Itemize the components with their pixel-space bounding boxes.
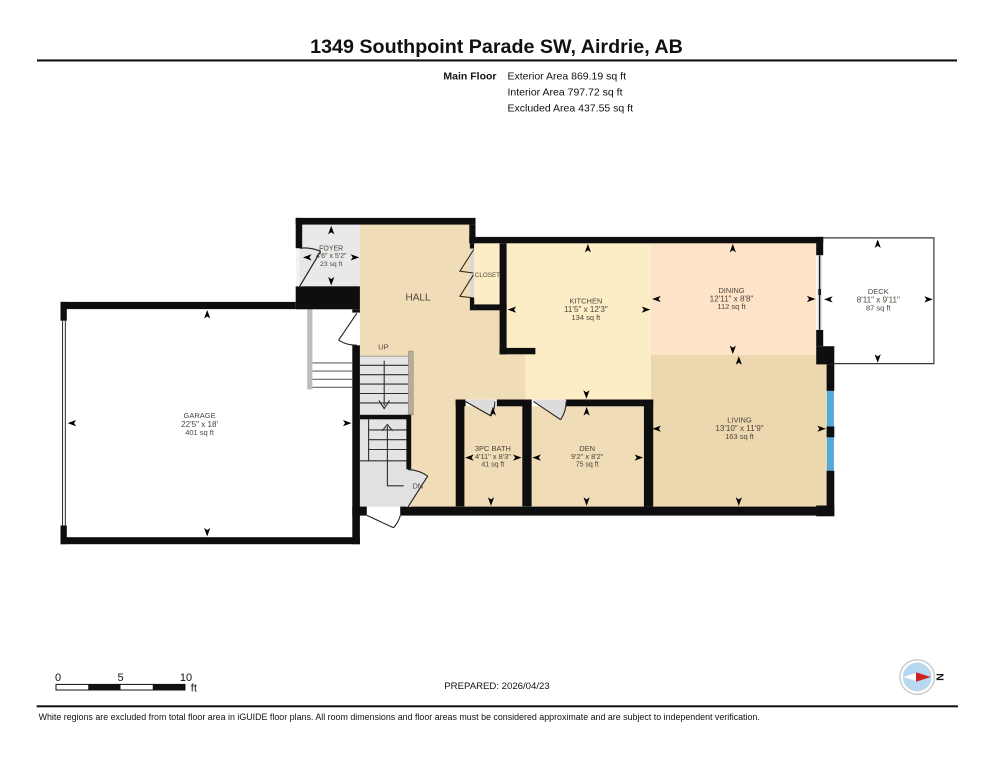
svg-text:5: 5 <box>117 672 123 684</box>
svg-text:87 sq ft: 87 sq ft <box>866 303 892 312</box>
svg-text:112 sq ft: 112 sq ft <box>717 302 746 311</box>
svg-text:Main Floor: Main Floor <box>443 70 496 82</box>
svg-text:9'2" x 8'2": 9'2" x 8'2" <box>571 452 604 461</box>
svg-text:401 sq ft: 401 sq ft <box>185 428 215 437</box>
svg-text:Interior Area 797.72 sq ft: Interior Area 797.72 sq ft <box>508 87 623 99</box>
svg-text:4'11" x 8'3": 4'11" x 8'3" <box>475 452 511 461</box>
svg-text:GARAGE: GARAGE <box>184 411 216 420</box>
svg-text:UP: UP <box>378 343 389 352</box>
svg-text:ft: ft <box>191 683 197 695</box>
svg-text:N: N <box>934 673 946 681</box>
svg-text:75 sq ft: 75 sq ft <box>576 462 599 469</box>
svg-text:LIVING: LIVING <box>727 416 752 425</box>
svg-text:4'6" x 5'2": 4'6" x 5'2" <box>316 253 347 260</box>
svg-text:163 sq ft: 163 sq ft <box>725 432 755 441</box>
svg-text:41 sq ft: 41 sq ft <box>481 462 504 469</box>
svg-text:23 sq ft: 23 sq ft <box>320 261 342 268</box>
svg-text:White regions are excluded fro: White regions are excluded from total fl… <box>39 712 760 722</box>
svg-text:Exterior Area 869.19 sq ft: Exterior Area 869.19 sq ft <box>508 70 627 82</box>
svg-text:Excluded Area 437.55 sq ft: Excluded Area 437.55 sq ft <box>508 103 634 115</box>
svg-text:PREPARED: 2026/04/23: PREPARED: 2026/04/23 <box>444 681 549 692</box>
svg-text:0: 0 <box>55 672 61 684</box>
svg-text:134 sq ft: 134 sq ft <box>572 313 602 322</box>
svg-text:CLOSET: CLOSET <box>475 272 500 279</box>
svg-text:HALL: HALL <box>405 292 430 303</box>
svg-text:FOYER: FOYER <box>319 245 343 252</box>
svg-text:DN: DN <box>412 482 423 491</box>
svg-text:1349 Southpoint Parade SW, Air: 1349 Southpoint Parade SW, Airdrie, AB <box>310 36 683 58</box>
